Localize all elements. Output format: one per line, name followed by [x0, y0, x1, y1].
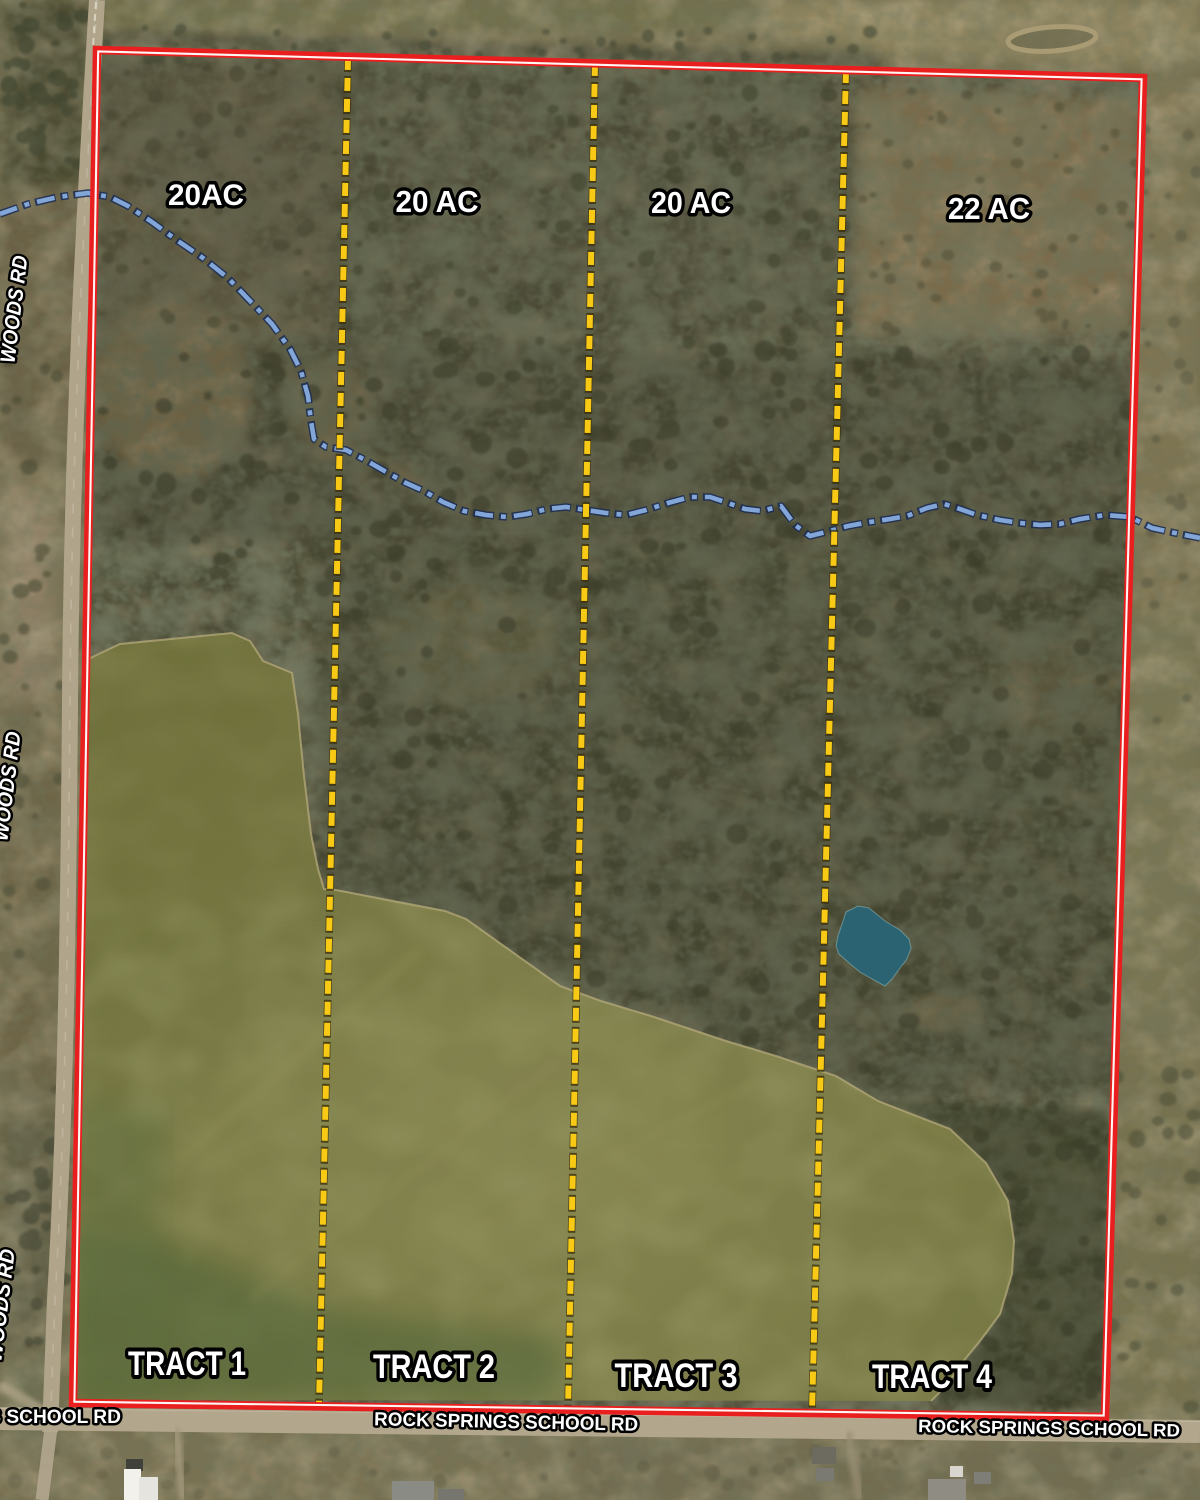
svg-text:TRACT 2: TRACT 2 — [373, 1348, 495, 1386]
svg-text:TRACT 1: TRACT 1 — [128, 1345, 246, 1383]
svg-text:20 AC: 20 AC — [396, 184, 479, 219]
svg-text:20 AC: 20 AC — [651, 185, 731, 220]
svg-text:TRACT 3: TRACT 3 — [615, 1357, 738, 1395]
svg-text:ROCK SPRINGS SCHOOL RD: ROCK SPRINGS SCHOOL RD — [0, 1407, 121, 1428]
svg-text:20AC: 20AC — [168, 179, 244, 212]
svg-text:22 AC: 22 AC — [948, 191, 1030, 226]
svg-text:TRACT 4: TRACT 4 — [872, 1358, 992, 1396]
